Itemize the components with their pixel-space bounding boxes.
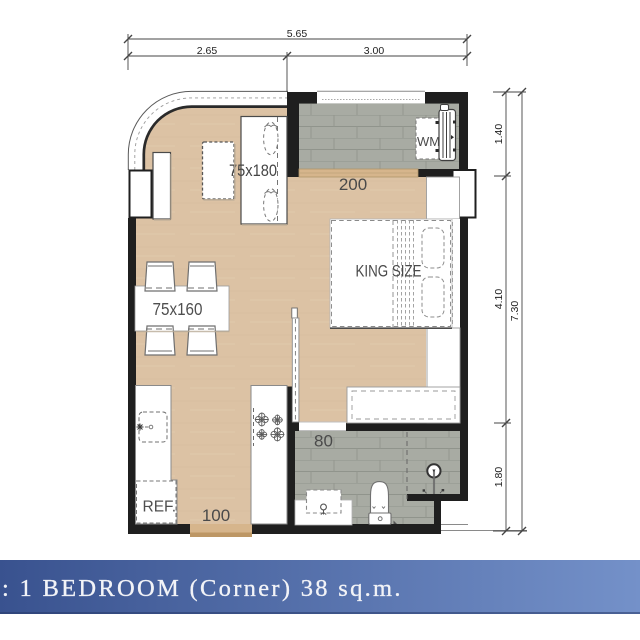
svg-text:REF.: REF. <box>143 499 177 516</box>
svg-text:100: 100 <box>202 506 230 525</box>
svg-text:KING SIZE: KING SIZE <box>356 262 422 281</box>
svg-text:4.10: 4.10 <box>493 289 505 310</box>
svg-text:7.30: 7.30 <box>509 301 521 322</box>
svg-text:75x180: 75x180 <box>229 162 277 180</box>
svg-text:1.80: 1.80 <box>493 467 505 488</box>
svg-text:200: 200 <box>339 175 367 194</box>
svg-text:5.65: 5.65 <box>287 28 308 40</box>
svg-text:75x160: 75x160 <box>153 299 203 319</box>
svg-text:1.40: 1.40 <box>493 124 505 145</box>
svg-text:80: 80 <box>314 432 333 451</box>
svg-text:WM: WM <box>417 134 440 149</box>
svg-text:2.65: 2.65 <box>197 45 218 57</box>
svg-text:3.00: 3.00 <box>364 45 385 57</box>
